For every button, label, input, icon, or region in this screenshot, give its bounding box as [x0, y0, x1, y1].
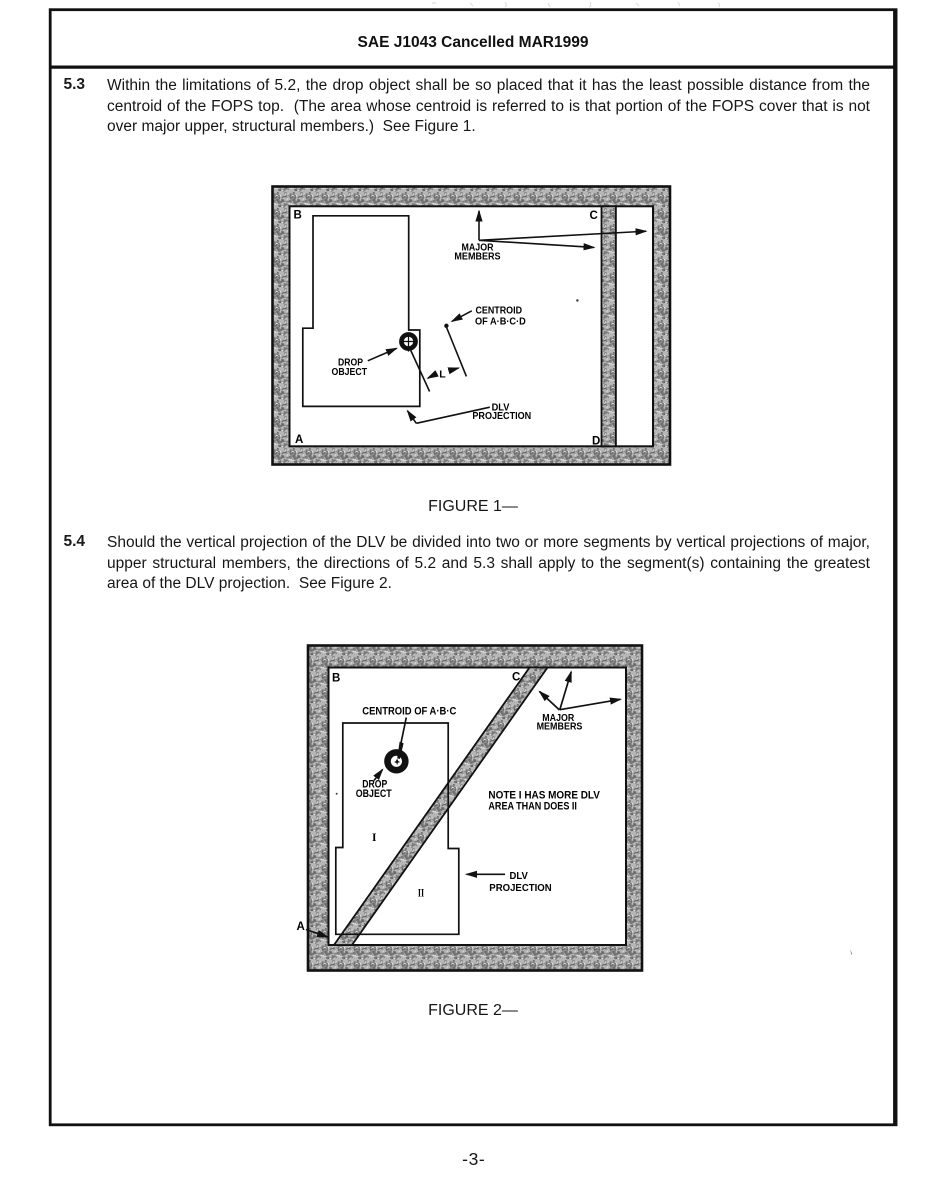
svg-text:CENTROID OF A·B·C: CENTROID OF A·B·C: [362, 706, 456, 718]
svg-text:II: II: [418, 887, 425, 899]
svg-text:MEMBERS: MEMBERS: [537, 721, 583, 732]
svg-text:DLV: DLV: [510, 871, 528, 882]
svg-text:I: I: [372, 832, 377, 844]
svg-text:C: C: [590, 210, 598, 222]
svg-text:MEMBERS: MEMBERS: [454, 252, 500, 263]
svg-text:PROJECTION: PROJECTION: [472, 411, 531, 422]
svg-text:OBJECT: OBJECT: [332, 367, 368, 378]
svg-text:B: B: [332, 673, 340, 685]
svg-text:OF A·B·C·D: OF A·B·C·D: [475, 316, 526, 327]
svg-text:PROJECTION: PROJECTION: [489, 883, 551, 894]
svg-text:C: C: [512, 672, 520, 684]
svg-text:CENTROID: CENTROID: [476, 306, 523, 317]
svg-text:D: D: [592, 435, 600, 447]
svg-text:AREA THAN DOES II: AREA THAN DOES II: [488, 801, 577, 813]
svg-text:OBJECT: OBJECT: [356, 788, 392, 800]
svg-text:A: A: [297, 921, 305, 933]
svg-text:A: A: [295, 434, 303, 446]
svg-text:L: L: [439, 369, 446, 381]
svg-text:B: B: [294, 209, 302, 221]
